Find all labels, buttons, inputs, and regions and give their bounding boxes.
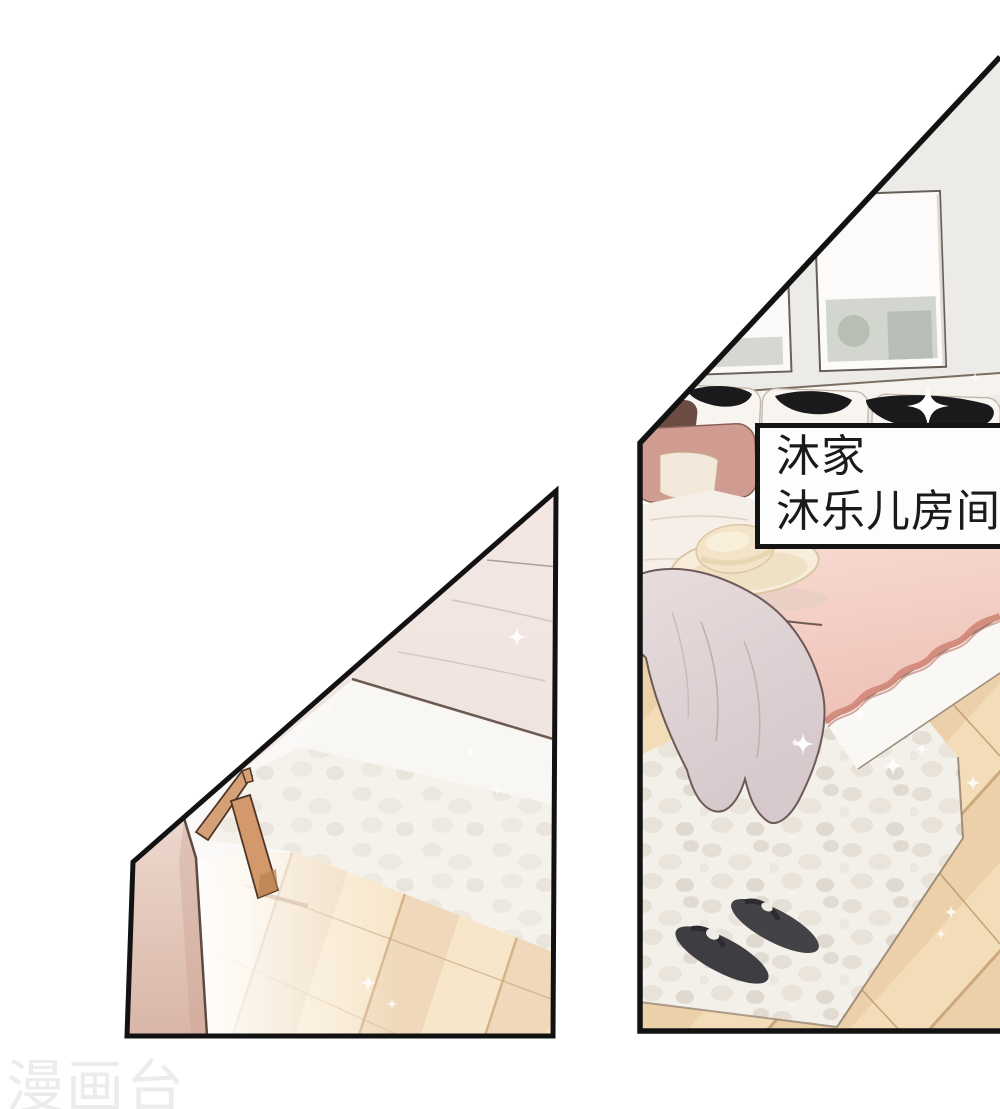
comic-page: 沐家 沐乐儿房间 漫画台 <box>0 0 1000 1109</box>
left-panel-scene <box>120 480 570 1040</box>
caption-line-1: 沐家 <box>776 429 1000 484</box>
caption-box: 沐家 沐乐儿房间 <box>755 423 1000 549</box>
pink-wall <box>127 818 207 1036</box>
watermark: 漫画台 <box>6 1040 186 1109</box>
comic-art <box>0 0 1000 1109</box>
picture-frame-large <box>814 191 946 371</box>
caption-line-2: 沐乐儿房间 <box>776 484 1000 539</box>
